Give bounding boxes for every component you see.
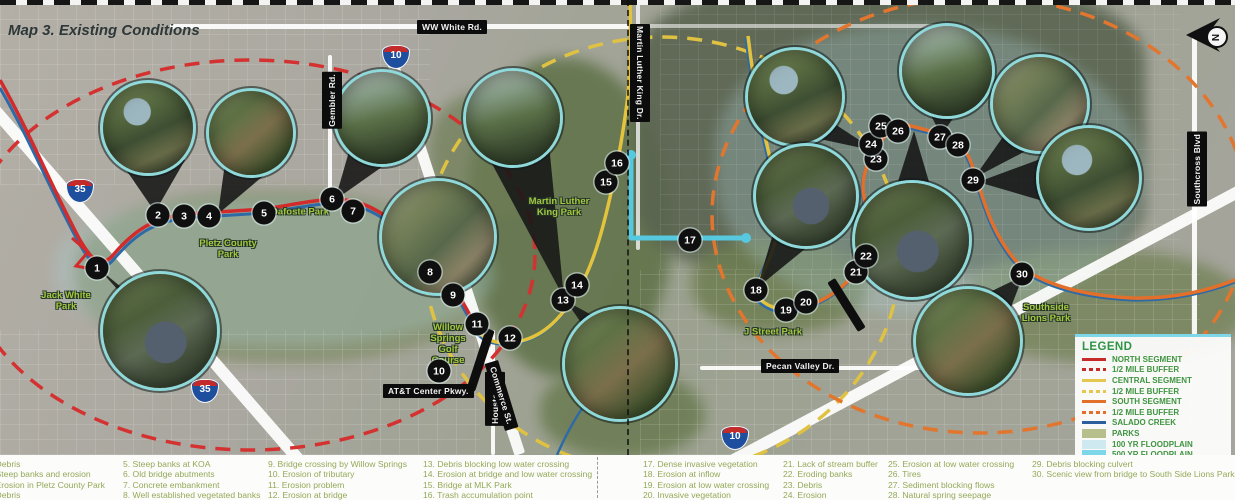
interstate-number: 10 — [382, 50, 410, 69]
park-label: Dafoste Park — [271, 207, 329, 218]
map-marker: 26 — [887, 120, 910, 143]
photo-inset — [855, 183, 969, 297]
photo-inset — [209, 91, 293, 175]
legend-label: 500 YR FLOODPLAIN — [1112, 450, 1193, 455]
map-marker: 8 — [419, 261, 442, 284]
park-label: Southside Lions Park — [1022, 302, 1071, 324]
park-label: Martin Luther King Park — [529, 196, 590, 218]
legend-label: 1/2 MILE BUFFER — [1112, 408, 1179, 417]
legend-row: SOUTH SEGMENT — [1082, 396, 1224, 407]
photo-inset — [748, 50, 842, 144]
notes-divider-line — [597, 457, 598, 498]
legend-row: 500 YR FLOODPLAIN — [1082, 449, 1224, 455]
note-item: 18. Erosion at inflow — [643, 469, 769, 479]
legend-label: PARKS — [1112, 429, 1139, 438]
map-marker: 6 — [321, 188, 344, 211]
note-item: 6. Old bridge abutments — [123, 469, 260, 479]
legend: LEGEND NORTH SEGMENT 1/2 MILE BUFFER CEN… — [1075, 334, 1231, 455]
notes-strip: 1. Debris2. Steep banks and erosion3. Er… — [0, 455, 1235, 500]
legend-swatch — [1082, 379, 1106, 382]
interstate-number: 35 — [66, 184, 94, 203]
legend-swatch — [1082, 358, 1106, 361]
map-marker: 29 — [962, 169, 985, 192]
notes-column: 13. Debris blocking low water crossing14… — [423, 459, 592, 500]
map-marker: 4 — [198, 205, 221, 228]
road-label: Gembler Rd. — [322, 72, 342, 129]
map-marker: 7 — [342, 200, 365, 223]
road-label: AT&T Center Pkwy. — [383, 384, 474, 398]
photo-inset — [336, 72, 428, 164]
north-letter: N — [1206, 26, 1228, 48]
legend-label: CENTRAL SEGMENT — [1112, 376, 1192, 385]
photo-inset — [103, 83, 193, 173]
photo-inset — [103, 274, 217, 388]
map-marker: 11 — [466, 313, 489, 336]
legend-swatch — [1082, 421, 1106, 424]
legend-swatch — [1082, 411, 1106, 414]
north-arrow-icon: N — [1186, 16, 1230, 56]
map-marker: 10 — [428, 360, 451, 383]
map-marker: 20 — [795, 291, 818, 314]
highlight-route-endpoint — [741, 233, 751, 243]
map-marker: 14 — [566, 274, 589, 297]
interstate-number: 10 — [721, 431, 749, 450]
photo-inset — [756, 146, 856, 246]
note-item: 16. Trash accumulation point — [423, 490, 592, 500]
legend-label: 1/2 MILE BUFFER — [1112, 365, 1179, 374]
map-page: 1234567891011121314151617181920212223242… — [0, 0, 1235, 500]
note-item: 5. Steep banks at KOA — [123, 459, 260, 469]
map-marker: 28 — [947, 134, 970, 157]
legend-swatch — [1082, 400, 1106, 403]
legend-row: 1/2 MILE BUFFER — [1082, 365, 1224, 376]
interstate-shield-icon: 35 — [66, 179, 94, 203]
note-item: 12. Erosion at bridge — [268, 490, 407, 500]
notes-column: 5. Steep banks at KOA6. Old bridge abutm… — [123, 459, 260, 500]
map-marker: 12 — [499, 327, 522, 350]
road-label: WW White Rd. — [417, 20, 487, 34]
photo-inset — [565, 309, 675, 419]
legend-row: 1/2 MILE BUFFER — [1082, 386, 1224, 397]
map-canvas: 1234567891011121314151617181920212223242… — [0, 0, 1235, 455]
map-marker: 22 — [855, 245, 878, 268]
road-label: Martin Luther King Dr. — [630, 24, 650, 122]
map-marker: 3 — [173, 205, 196, 228]
legend-label: 1/2 MILE BUFFER — [1112, 387, 1179, 396]
note-item: 23. Debris — [783, 480, 878, 490]
interstate-shield-icon: 35 — [191, 379, 219, 403]
legend-row: 1/2 MILE BUFFER — [1082, 407, 1224, 418]
notes-column: 1. Debris2. Steep banks and erosion3. Er… — [0, 459, 105, 500]
note-item: 17. Dense invasive vegetation — [643, 459, 769, 469]
legend-row: SALADO CREEK — [1082, 418, 1224, 429]
legend-row: PARKS — [1082, 428, 1224, 439]
legend-label: SOUTH SEGMENT — [1112, 397, 1182, 406]
photo-inset — [916, 289, 1020, 393]
map-marker: 18 — [745, 279, 768, 302]
note-item: 10. Erosion of tributary — [268, 469, 407, 479]
legend-swatch — [1082, 440, 1106, 449]
note-item: 20. Invasive vegetation — [643, 490, 769, 500]
note-item: 21. Lack of stream buffer — [783, 459, 878, 469]
photo-inset — [1039, 128, 1139, 228]
note-item: 26. Tires — [888, 469, 1014, 479]
notes-column: 17. Dense invasive vegetation18. Erosion… — [643, 459, 769, 500]
note-item: 7. Concrete embankment — [123, 480, 260, 490]
notes-column: 29. Debris blocking culvert30. Scenic vi… — [1032, 459, 1235, 480]
note-item: 9. Bridge crossing by Willow Springs — [268, 459, 407, 469]
notes-column: 9. Bridge crossing by Willow Springs10. … — [268, 459, 407, 500]
note-item: 4. Debris — [0, 490, 105, 500]
map-marker: 17 — [679, 229, 702, 252]
road-label: Southcross Blvd — [1187, 132, 1207, 207]
legend-title: LEGEND — [1082, 341, 1224, 353]
map-marker: 9 — [442, 284, 465, 307]
interstate-shield-icon: 10 — [382, 45, 410, 69]
legend-label: NORTH SEGMENT — [1112, 355, 1182, 364]
note-item: 22. Eroding banks — [783, 469, 878, 479]
map-border-dashes — [0, 0, 1235, 5]
legend-label: 100 YR FLOODPLAIN — [1112, 440, 1193, 449]
legend-swatch — [1082, 390, 1106, 393]
legend-swatch — [1082, 429, 1106, 438]
legend-label: SALADO CREEK — [1112, 418, 1176, 427]
note-item: 2. Steep banks and erosion — [0, 469, 105, 479]
map-marker: 1 — [86, 257, 109, 280]
legend-row: NORTH SEGMENT — [1082, 354, 1224, 365]
map-marker: 30 — [1011, 263, 1034, 286]
note-item: 28. Natural spring seepage — [888, 490, 1014, 500]
notes-column: 25. Erosion at low water crossing26. Tir… — [888, 459, 1014, 500]
note-item: 8. Well established vegetated banks — [123, 490, 260, 500]
legend-swatch — [1082, 450, 1106, 455]
note-item: 11. Erosion problem — [268, 480, 407, 490]
map-marker: 5 — [253, 202, 276, 225]
section-divider-line — [627, 0, 629, 455]
note-item: 15. Bridge at MLK Park — [423, 480, 592, 490]
park-label: Pletz County Park — [199, 238, 257, 260]
photo-inset — [466, 71, 560, 165]
note-item: 27. Sediment blocking flows — [888, 480, 1014, 490]
map-title: Map 3. Existing Conditions — [8, 22, 200, 39]
interstate-number: 35 — [191, 384, 219, 403]
note-item: 13. Debris blocking low water crossing — [423, 459, 592, 469]
legend-swatch — [1082, 368, 1106, 371]
note-item: 19. Erosion at low water crossing — [643, 480, 769, 490]
photo-inset — [902, 26, 992, 116]
note-item: 24. Erosion — [783, 490, 878, 500]
note-item: 30. Scenic view from bridge to South Sid… — [1032, 469, 1235, 479]
note-item: 1. Debris — [0, 459, 105, 469]
highlight-route-cyan — [631, 155, 746, 238]
interstate-shield-icon: 10 — [721, 426, 749, 450]
notes-column: 21. Lack of stream buffer22. Eroding ban… — [783, 459, 878, 500]
legend-row: CENTRAL SEGMENT — [1082, 375, 1224, 386]
note-item: 3. Erosion in Pletz County Park — [0, 480, 105, 490]
legend-row: 100 YR FLOODPLAIN — [1082, 439, 1224, 450]
note-item: 25. Erosion at low water crossing — [888, 459, 1014, 469]
note-item: 29. Debris blocking culvert — [1032, 459, 1235, 469]
park-label: J Street Park — [744, 327, 802, 338]
park-label: Jack White Park — [41, 290, 91, 312]
map-marker: 2 — [147, 204, 170, 227]
note-item: 14. Erosion at bridge and low water cros… — [423, 469, 592, 479]
map-marker: 16 — [606, 152, 629, 175]
road-label: Pecan Valley Dr. — [761, 359, 839, 373]
